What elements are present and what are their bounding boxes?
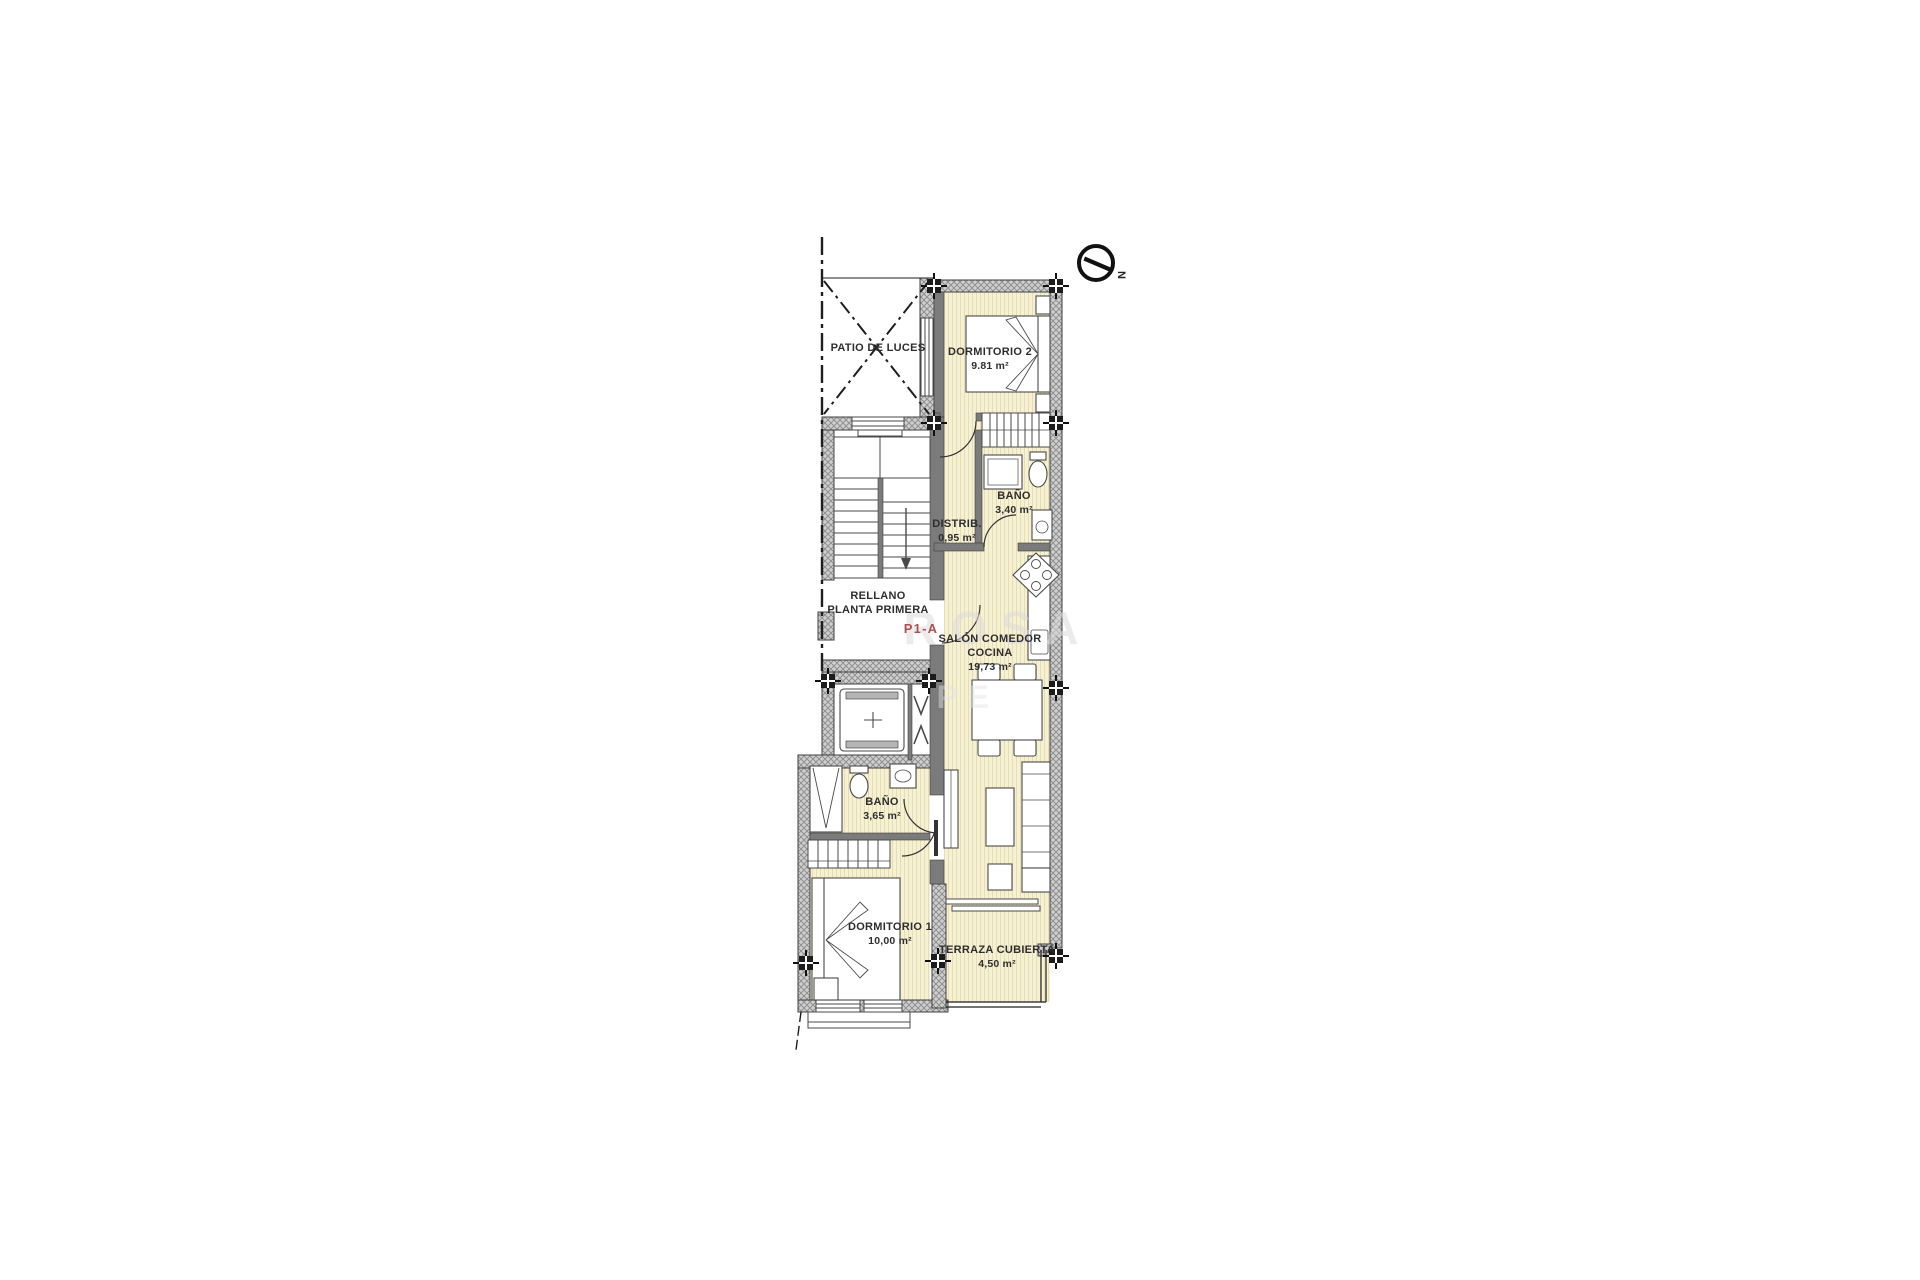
partition-shaft-strip — [908, 684, 912, 760]
wall-rellano-bottom — [822, 660, 934, 672]
label-salon-1: SALÓN COMEDOR — [939, 632, 1042, 645]
label-salon-area: 19,73 m² — [968, 661, 1012, 673]
toilet — [1029, 461, 1047, 487]
partition-dorm2-bottom-b — [976, 413, 982, 421]
label-dormitorio1-area: 10,00 m² — [868, 935, 912, 947]
window-dorm1-b — [864, 1000, 902, 1012]
label-patio: PATIO DE LUCES — [831, 342, 926, 354]
label-terraza: TERRAZA CUBIERTA — [939, 944, 1055, 956]
window-stair-patio — [852, 417, 904, 436]
watermark-line2: PE — [937, 679, 1000, 715]
label-distrib-area: 0,95 m² — [938, 532, 976, 544]
label-bano2: BAÑO — [865, 795, 899, 808]
partition-salon-left-lower — [930, 860, 944, 884]
boundary-segment — [796, 1012, 801, 1050]
window-dorm2-patio — [921, 318, 933, 396]
sofa-chaise — [1022, 868, 1050, 892]
partition-salon-left-upper — [930, 417, 944, 600]
partition-dorm2-left — [934, 292, 944, 417]
wall-wing-left — [798, 768, 810, 1012]
coffee-table — [986, 788, 1014, 846]
window-dorm1-a — [816, 1000, 860, 1012]
label-distrib: DISTRIB. — [932, 518, 981, 530]
window-sill-dorm1 — [808, 1012, 910, 1028]
compass-needle — [1084, 257, 1114, 273]
wall-stair-left — [822, 430, 834, 580]
shaft-strip-floor — [912, 684, 930, 755]
sink — [890, 764, 916, 788]
partition-bano1-bottom-a — [934, 543, 984, 551]
wardrobe-dorm1 — [808, 840, 890, 868]
unit-label: P1-A — [904, 621, 938, 636]
sofa — [1022, 762, 1050, 892]
label-rellano-2: PLANTA PRIMERA — [827, 604, 928, 616]
label-dormitorio2: DORMITORIO 2 — [948, 346, 1032, 358]
elevator-rail-bottom — [846, 741, 898, 748]
wardrobe-dorm2 — [982, 413, 1050, 447]
label-salon-2: COCINA — [967, 647, 1012, 659]
partition-bano2-bottom — [810, 833, 930, 840]
partition-bano1-bottom-b — [1018, 543, 1050, 551]
label-terraza-area: 4,50 m² — [978, 958, 1016, 970]
chair — [978, 740, 1000, 756]
label-bano1-area: 3,40 m² — [995, 504, 1033, 516]
label-dormitorio1: DORMITORIO 1 — [848, 921, 932, 933]
chair — [1014, 664, 1036, 680]
stair-stringer — [878, 478, 883, 578]
terraza-floor — [946, 912, 1050, 1002]
floor-plan-drawing: ROSA PE PATIO DE LUCES DORMITORIO 2 9.81… — [0, 0, 1920, 1280]
partition-salon-left-mid — [930, 645, 944, 795]
stair-landing — [834, 437, 930, 478]
nightstand — [1036, 296, 1050, 314]
north-compass: N — [1079, 246, 1127, 280]
wall-elevator-top — [834, 672, 934, 684]
label-bano2-area: 3,65 m² — [863, 810, 901, 822]
toilet-tank — [1030, 452, 1046, 460]
ottoman — [988, 864, 1012, 890]
chair — [1014, 740, 1036, 756]
floor-plan-page: ROSA PE PATIO DE LUCES DORMITORIO 2 9.81… — [0, 0, 1920, 1280]
toilet-tank — [850, 766, 868, 773]
toilet — [850, 774, 868, 798]
label-bano1: BAÑO — [997, 489, 1031, 502]
label-dormitorio2-area: 9.81 m² — [971, 360, 1009, 372]
nightstand — [814, 978, 838, 1000]
wall-rellano-pilaster — [818, 612, 834, 640]
label-rellano-1: RELLANO — [850, 590, 905, 602]
wall-top — [934, 280, 1062, 292]
nightstand — [1036, 394, 1050, 412]
compass-north-label: N — [1115, 271, 1127, 279]
elevator-rail-top — [846, 692, 898, 699]
